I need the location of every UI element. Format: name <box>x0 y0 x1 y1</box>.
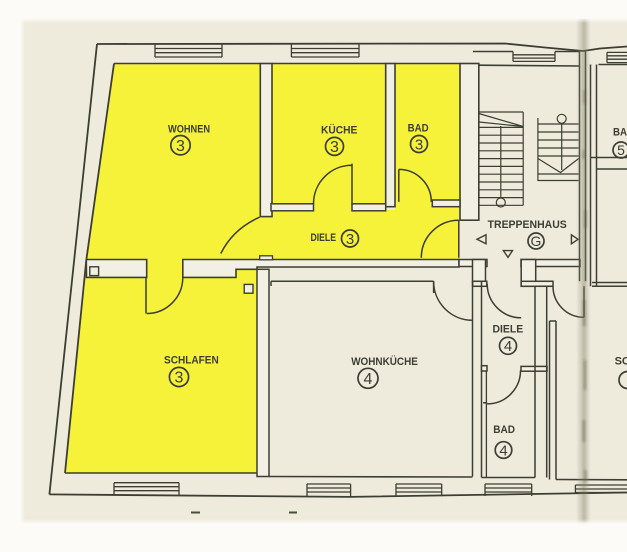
svg-text:BAD: BAD <box>613 127 627 139</box>
svg-text:WOHNKÜCHE: WOHNKÜCHE <box>351 355 418 368</box>
svg-text:3: 3 <box>176 138 185 155</box>
svg-text:DIELE: DIELE <box>311 232 337 244</box>
svg-text:3: 3 <box>330 139 339 156</box>
svg-text:3: 3 <box>175 370 184 387</box>
svg-text:SCH: SCH <box>615 356 627 368</box>
svg-text:DIELE: DIELE <box>493 324 524 336</box>
svg-text:WOHNEN: WOHNEN <box>168 123 210 135</box>
svg-text:G: G <box>531 233 542 249</box>
svg-text:5: 5 <box>617 142 625 158</box>
svg-text:4: 4 <box>499 442 507 459</box>
svg-text:3: 3 <box>346 231 354 248</box>
svg-text:TREPPENHAUS: TREPPENHAUS <box>488 219 567 231</box>
svg-text:4: 4 <box>364 371 373 388</box>
svg-text:BAD: BAD <box>493 424 515 436</box>
svg-text:4: 4 <box>504 338 512 355</box>
svg-text:3: 3 <box>415 136 423 153</box>
svg-text:SCHLAFEN: SCHLAFEN <box>164 355 219 367</box>
svg-text:KÜCHE: KÜCHE <box>321 124 357 137</box>
svg-text:BAD: BAD <box>408 123 429 135</box>
